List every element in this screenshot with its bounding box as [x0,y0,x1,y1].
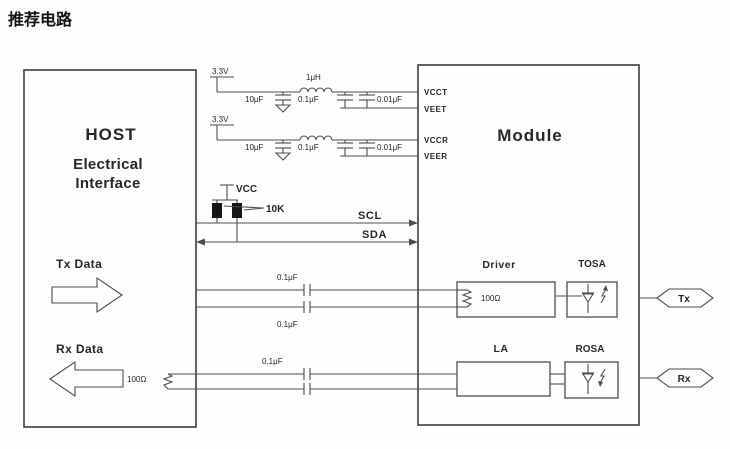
pullup-value-label: 10K [266,204,285,215]
rosa-label: ROSA [576,344,605,355]
module-title: Module [497,126,563,145]
recommended-circuit-page: 推荐电路 HOST Electrical Interface Tx Data R… [0,0,730,449]
cap2-bottom-label: 0.01μF [377,143,402,152]
tx-connector-label: Tx [678,294,690,305]
rx-signal-path: 0.1μF [164,357,457,395]
host-title: HOST [85,125,136,144]
supply-3v3-top-label: 3.3V [212,67,229,76]
rx-cap-label: 0.1μF [262,357,283,366]
inductor-label: 1μH [306,73,321,82]
arrowhead-icon [409,220,418,227]
tosa-box [567,282,617,317]
callout-line [224,206,264,208]
tx-cap-top-label: 0.1μF [277,273,298,282]
inductor-symbol [300,136,332,140]
sda-label: SDA [362,229,387,241]
host-subtitle-line2: Interface [75,175,140,192]
ground-symbol [276,105,290,112]
la-label: LA [494,343,509,355]
inductor-symbol [300,88,332,92]
supply-3v3-bottom-label: 3.3V [212,115,229,124]
arrowhead-icon [196,239,205,246]
cap2-top-label: 0.01μF [377,95,402,104]
driver-box [457,282,555,317]
tx-data-label: Tx Data [56,257,102,271]
tx-power-filter: 3.3V 1μH 10μF 0.1μF 0.01μF [210,67,418,112]
optical-connectors: Tx Rx [639,289,713,387]
pullup-resistor-symbol [212,203,222,218]
rx-connector-label: Rx [678,374,691,385]
cap1-bottom-label: 0.1μF [298,143,319,152]
pin-vcct-label: VCCT [424,88,447,97]
arrowhead-icon [409,239,418,246]
pin-veer-label: VEER [424,152,447,161]
host-subtitle-line1: Electrical [73,156,143,173]
la-box [457,362,550,396]
rx-termination-label: 100Ω [127,375,146,384]
pin-veet-label: VEET [424,105,447,114]
rosa-box [565,362,618,398]
cap1-top-label: 0.1μF [298,95,319,104]
driver-label: Driver [482,259,515,271]
vcc-label: VCC [236,184,257,195]
bulk-cap-bottom-label: 10μF [245,143,264,152]
i2c-section: VCC 10K SCL SDA [196,184,418,246]
rx-power-filter: 3.3V 10μF 0.1μF 0.01μF [210,115,418,160]
scl-label: SCL [358,210,382,222]
rx-data-label: Rx Data [56,342,103,356]
circuit-diagram: HOST Electrical Interface Tx Data Rx Dat… [0,0,730,449]
pin-vccr-label: VCCR [424,136,448,145]
tx-cap-bottom-label: 0.1μF [277,320,298,329]
ground-symbol [276,153,290,160]
bulk-cap-top-label: 10μF [245,95,264,104]
driver-termination-label: 100Ω [481,294,500,303]
pullup-resistor-symbol [232,203,242,218]
tosa-label: TOSA [578,259,606,270]
